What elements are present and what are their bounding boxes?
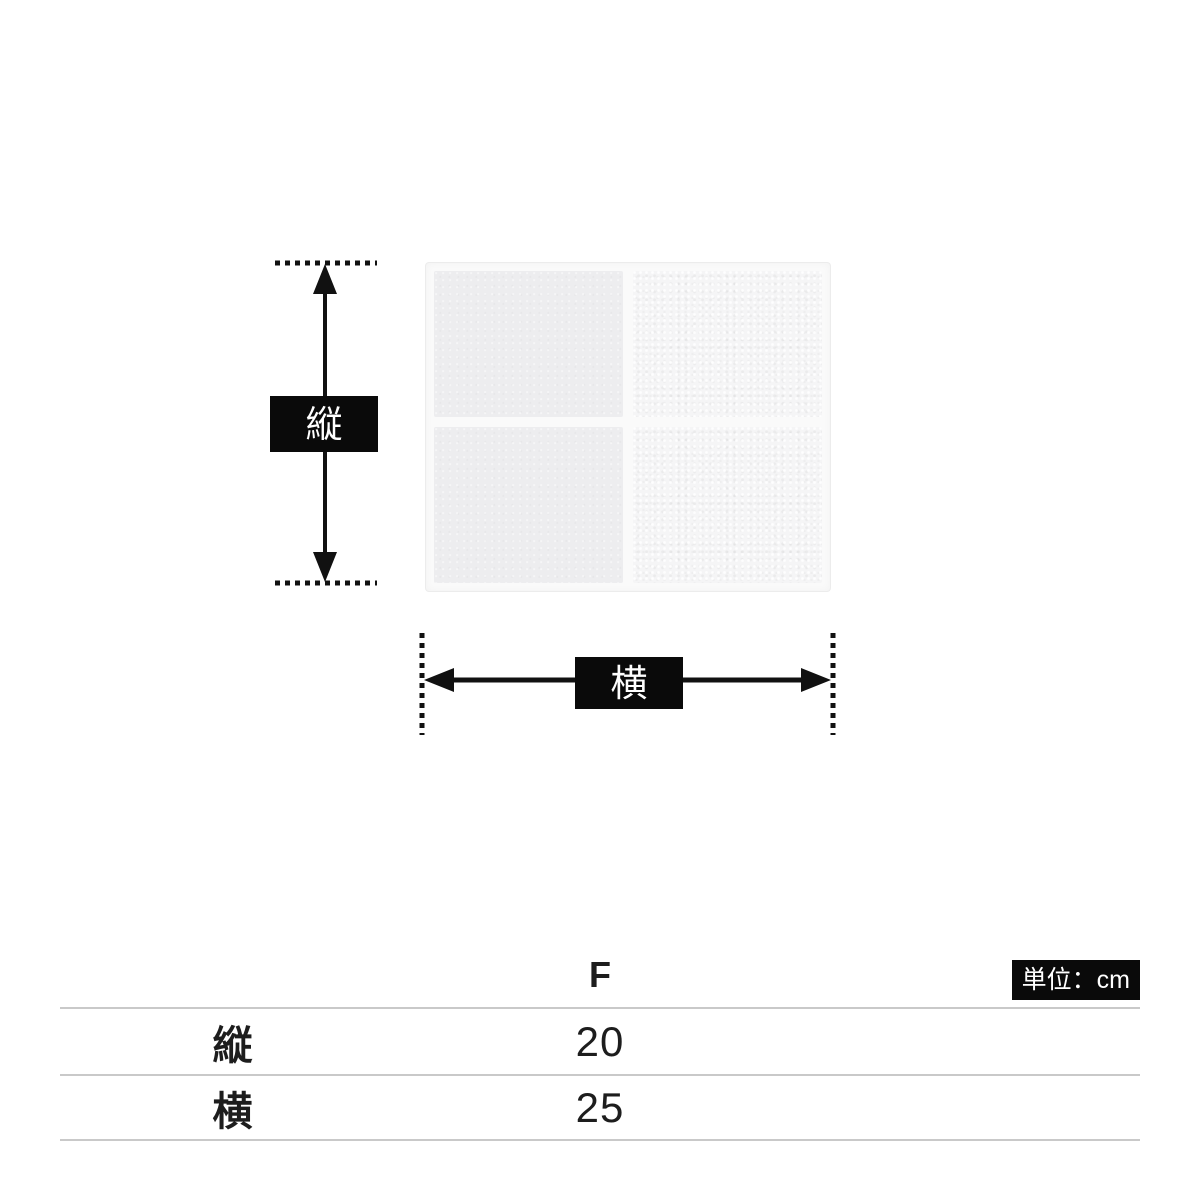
product-photo-towel [425,262,831,592]
width-dimension-label-text: 横 [611,665,648,702]
width-dimension-label: 横 [575,657,683,709]
width-arrow-left-head-icon [424,668,454,692]
row-label-cell: 横 [60,1079,405,1137]
height-dimension-label: 縦 [270,396,378,452]
table-row-height: 縦 20 [60,1007,1140,1074]
height-arrow-down-head-icon [313,552,337,582]
height-dimension-label-text: 縦 [306,406,343,443]
row-label-cell: 縦 [60,1013,405,1071]
row-value-cell: 20 [405,1018,795,1066]
size-column-header: F [405,954,795,996]
height-arrow-up-head-icon [313,264,337,294]
size-table: F 単位：cm 縦 20 横 25 [60,942,1140,1141]
towel-quadrant-top-left [434,271,623,417]
size-table-header: F 単位：cm [60,942,1140,1007]
width-arrow-right-head-icon [801,668,831,692]
towel-quadrant-top-right [633,271,822,417]
size-guide-canvas: 縦 横 F 単位：cm 縦 20 横 25 [0,0,1200,1200]
unit-badge: 単位：cm [1012,960,1140,1000]
row-value-cell: 25 [405,1084,795,1132]
towel-quadrant-bottom-right [633,427,822,583]
table-row-width: 横 25 [60,1074,1140,1141]
towel-quadrant-bottom-left [434,427,623,583]
towel-panel-grid [434,271,822,583]
